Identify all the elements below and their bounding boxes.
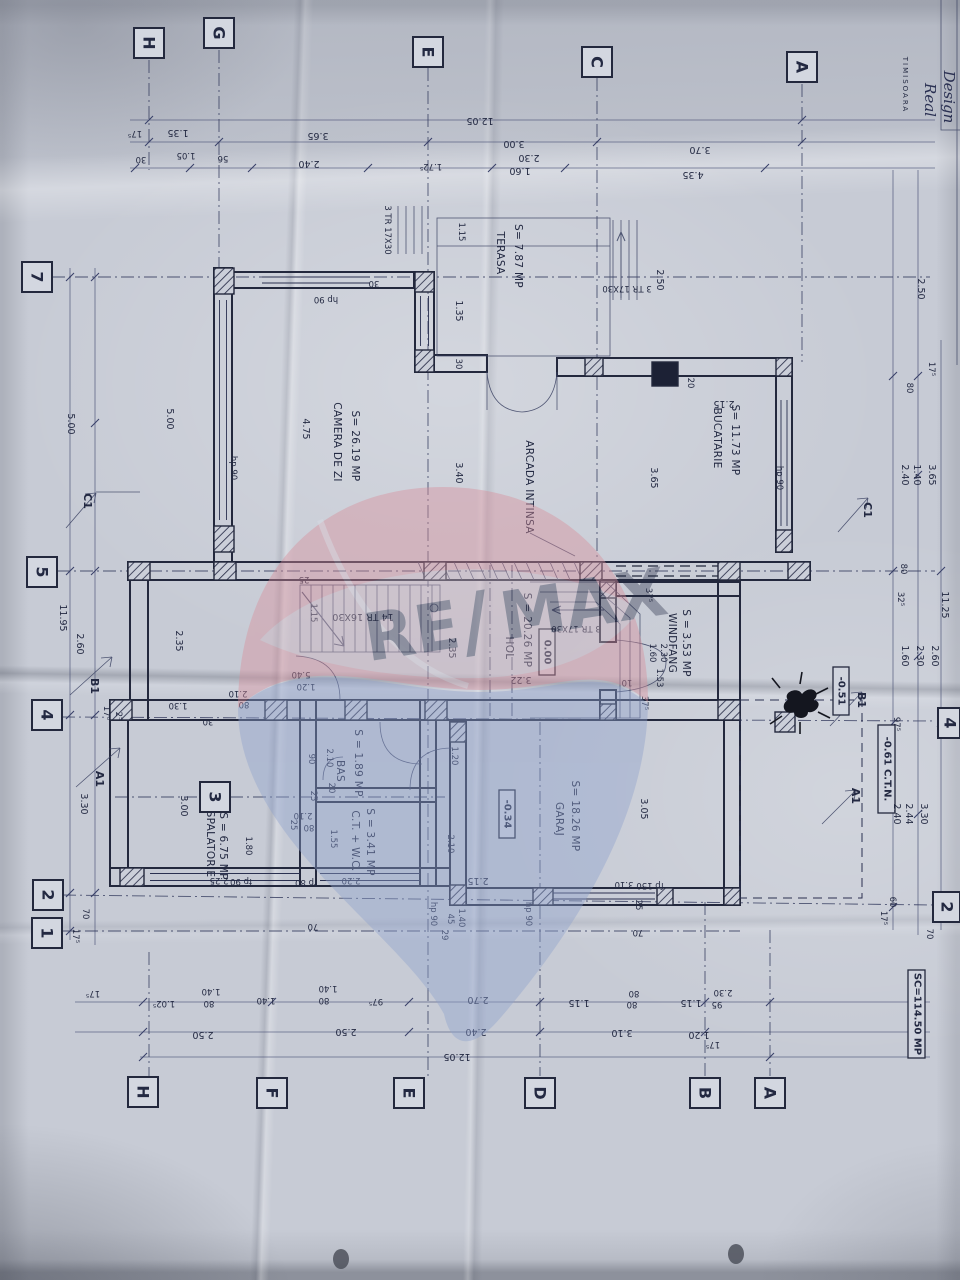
- room-bucatarie-area: S= 11.73 MP: [729, 405, 741, 476]
- stair-terasa-left-label: 3 TR 17X30: [382, 205, 392, 254]
- dim-label: 2.40: [891, 803, 902, 824]
- dim-label: 11.25: [939, 591, 950, 618]
- dim-label: 2.30: [518, 152, 539, 163]
- dim-label: 4.35: [682, 169, 703, 180]
- dim-label: 12.05: [466, 115, 493, 126]
- room-terasa-name: TERASA: [494, 231, 506, 275]
- dim-label: 1.60: [647, 644, 657, 663]
- dashed-terrace: [740, 700, 862, 898]
- room-camera-area: S= 26.19 MP: [349, 411, 361, 482]
- grid-bubble-bottom-d: D: [531, 1086, 550, 1099]
- dim-label: 1.60: [899, 645, 910, 666]
- dim-label: 3.30: [78, 793, 89, 814]
- dim-label: 30: [136, 154, 147, 164]
- punch-holes: [333, 1244, 744, 1269]
- dim-label: 3.65: [307, 130, 328, 141]
- section-b1-right: B1: [855, 692, 868, 708]
- dim-label: 56: [218, 153, 229, 163]
- dim-label: 2.15: [713, 398, 734, 409]
- grid-bubble-top-a: A: [793, 61, 812, 74]
- floor-plan-drawing: TIMISOARA Real Design C1 C1 B1 B1 A1 A1 …: [0, 0, 960, 1280]
- section-a1-right: A1: [849, 788, 862, 804]
- grid-bubble-left-5: 5: [33, 566, 52, 577]
- dim-label: 3.70: [689, 144, 710, 155]
- dim-label: 70: [924, 929, 934, 940]
- dim-label: 3.10: [611, 1027, 632, 1038]
- dim-label: 1.20: [688, 1029, 709, 1040]
- dim-label: 3.30: [918, 803, 929, 824]
- dim-label: 1.15: [456, 223, 466, 242]
- dim-label: 5.00: [65, 413, 76, 434]
- dim-labels-left: 5.00 5.00 11.95 2.60 2.35 3.30 70 17⁵ 17…: [57, 408, 184, 943]
- floor-plan-photo: TIMISOARA Real Design C1 C1 B1 B1 A1 A1 …: [0, 0, 960, 1280]
- dim-label: 2.50: [654, 269, 665, 290]
- dim-label: 2.50: [915, 278, 926, 299]
- punch-hole: [333, 1249, 349, 1269]
- dim-label: 30: [453, 359, 463, 370]
- dim-label: 2.60: [929, 645, 940, 666]
- dim-label: 5.00: [164, 408, 175, 429]
- dim-label: 3.05: [638, 798, 649, 819]
- dim-label: 17⁵: [706, 1039, 720, 1049]
- dim-label: 30: [203, 716, 214, 726]
- grid-bubble-top-e: E: [419, 47, 438, 58]
- level-teren: -0.61 C.T.N.: [882, 737, 893, 802]
- grid-bubble-right-2: 2: [938, 901, 957, 912]
- grid-bubble-bottom-e: E: [400, 1088, 419, 1099]
- dim-label: 3.40: [453, 462, 464, 483]
- dim-label: 3.00: [178, 795, 189, 816]
- dim-label: 80: [629, 988, 640, 998]
- section-b1-left: B1: [88, 678, 101, 694]
- grid-bubble-left-2: 2: [39, 889, 58, 900]
- section-c1-left: C1: [81, 493, 94, 509]
- grid-bubble-bottom-f: F: [263, 1088, 282, 1099]
- dim-label: 1.15: [568, 997, 589, 1008]
- dim-label: 25: [633, 900, 643, 911]
- room-spalatorie-name: SPALATORIE: [204, 811, 216, 878]
- grid-bubble-bottom-h: H: [134, 1085, 153, 1098]
- watermark-re: RE: [358, 586, 465, 677]
- window-label-fp80: fp 80: [295, 877, 317, 887]
- dim-label: 80: [904, 383, 914, 394]
- dim-label: 1.40: [202, 986, 221, 996]
- dim-label: 3.00: [503, 138, 524, 149]
- dim-label: 17⁵: [878, 911, 888, 925]
- dim-label: 17⁵: [128, 128, 142, 138]
- dim-label: 97⁵: [369, 996, 383, 1006]
- dim-label: 2.25: [210, 875, 229, 885]
- dim-label: 60: [887, 897, 897, 908]
- room-terasa-area: S= 7.87 MP: [512, 224, 524, 288]
- dim-label: 80: [204, 998, 215, 1008]
- dim-labels-top: 12.05 1.35 3.65 3.00 3.70 2.30 2.40 1.60…: [128, 115, 711, 291]
- dim-label: 1.35: [453, 300, 464, 321]
- black-column: [652, 362, 678, 386]
- logo-brand-2: Design: [940, 70, 958, 124]
- window-label-hp90: hp 90: [774, 466, 784, 490]
- dim-label: 1.60: [509, 165, 530, 176]
- punch-hole: [728, 1244, 744, 1264]
- dim-label: 1.02⁵: [153, 998, 175, 1008]
- dim-label: 11.95: [57, 604, 68, 631]
- dim-label: 2.30: [714, 987, 733, 997]
- grid-bubble-inner-3: 3: [206, 791, 225, 802]
- grid-bubble-bottom-a: A: [761, 1087, 780, 1100]
- dim-label: 80: [627, 999, 638, 1009]
- dim-label: 70: [308, 921, 319, 931]
- room-camera-name: CAMERA DE ZI: [331, 402, 343, 482]
- dim-label: 70: [80, 909, 90, 920]
- dim-label: 2.60: [74, 633, 85, 654]
- dim-label: 3.10: [615, 879, 634, 889]
- dim-label: 2.40: [899, 464, 910, 485]
- grid-bubble-left-1: 1: [38, 927, 57, 938]
- grid-bubble-top-g: G: [210, 26, 229, 39]
- grid-bubble-bottom-b: B: [696, 1087, 715, 1099]
- grid-bubble-top-c: C: [588, 56, 607, 68]
- grid-bubble-left-7: 7: [28, 271, 47, 282]
- title-block: TIMISOARA Real Design: [901, 0, 960, 365]
- dim-label: 17⁵: [70, 929, 80, 943]
- dim-label: 1.72⁵: [420, 161, 442, 171]
- logo-city: TIMISOARA: [901, 56, 909, 113]
- dim-label: 2⁵: [113, 712, 123, 721]
- section-a1-left: A1: [93, 771, 106, 787]
- dim-label: 1.53: [654, 669, 664, 688]
- dim-label: 20: [685, 378, 695, 389]
- dim-label: 3.65: [926, 464, 937, 485]
- dim-label: 2.30: [914, 645, 925, 666]
- dim-label: 2.44: [903, 803, 914, 824]
- dim-label: 3.65: [648, 467, 659, 488]
- level-windfang: -0.51: [836, 677, 847, 706]
- dim-label: 2.50: [335, 1026, 356, 1037]
- dim-label: 2.50: [192, 1029, 213, 1040]
- dim-label: 1.15: [680, 997, 701, 1008]
- area-note: SC=114.50 MP: [912, 973, 923, 1055]
- room-bucatarie-name: BUCATARIE: [711, 407, 723, 468]
- dim-label: 80: [319, 995, 330, 1005]
- dim-label: 2.40: [298, 158, 319, 169]
- dim-label: 2.30: [658, 644, 668, 663]
- dim-label: 12.05: [443, 1051, 470, 1062]
- dim-label: 17⁵: [926, 362, 936, 376]
- window-label-hp90: hp 90: [314, 294, 338, 304]
- dim-label: 95: [712, 999, 723, 1009]
- terrace-door-arc: [487, 372, 522, 412]
- dim-label: 2.35: [173, 630, 184, 651]
- grid-bubble-top-h: H: [140, 36, 159, 49]
- dim-labels-bottom: 1.02⁵ 1.40 80 1.40 1.40 80 97⁵ 2.70 1.15…: [86, 983, 733, 1062]
- window-label-fp150: fp 150: [636, 880, 663, 890]
- room-spalatorie-area: S = 6.75 MP: [217, 812, 229, 880]
- dim-label: 1.35: [167, 127, 188, 138]
- dim-label: 80: [898, 564, 908, 575]
- dim-label: 97⁵: [891, 717, 901, 731]
- dim-label: 1.40: [257, 995, 276, 1005]
- grid-bubble-right-4: 4: [941, 717, 960, 728]
- dim-labels-right: 2.50 17⁵ 80 2.40 1.40 3.65 32⁵ 11.25 1.6…: [878, 278, 950, 939]
- dim-label: 1.30: [169, 700, 188, 710]
- grid-bubble-left-4: 4: [38, 709, 57, 720]
- section-c1-right: C1: [861, 502, 874, 518]
- remax-watermark: RE / MAX: [238, 487, 673, 1041]
- dim-label: 4.75: [300, 418, 311, 439]
- dim-label: 17⁵: [86, 988, 100, 998]
- dim-label: 70: [633, 927, 644, 937]
- stair-terasa-label: 3 TR 17X30: [602, 283, 651, 293]
- dim-label: 1.40: [319, 983, 338, 993]
- window-label-hp90: hp 90: [228, 456, 238, 480]
- dim-label: 1.80: [243, 837, 253, 856]
- dim-label: 30: [369, 278, 380, 288]
- window-label-fp90: fp 90: [230, 876, 252, 886]
- dim-label: 1.05: [177, 150, 196, 160]
- dim-label: 17⁵: [101, 706, 111, 720]
- dim-label: 32⁵: [895, 592, 905, 606]
- logo-brand-1: Real: [921, 82, 939, 117]
- room-windfang-area: S = 3.53 MP: [680, 609, 692, 677]
- dim-label: 1.40: [911, 464, 922, 485]
